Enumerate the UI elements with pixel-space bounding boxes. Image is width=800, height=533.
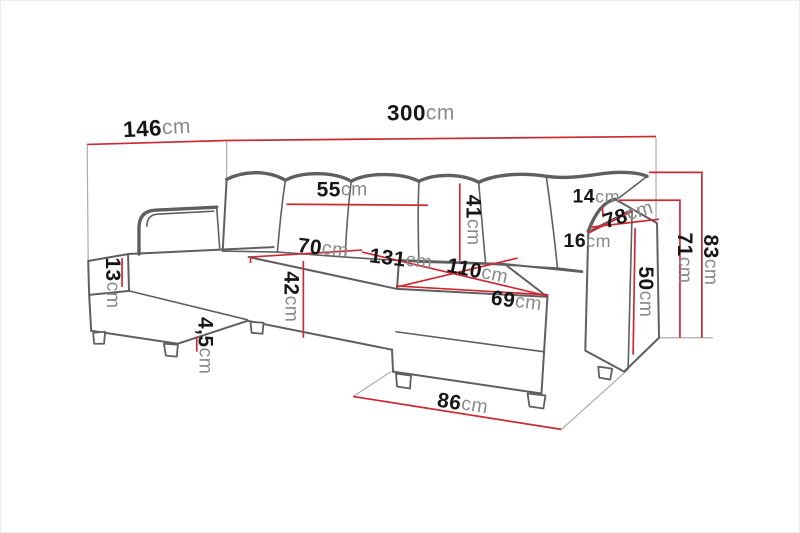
left-armrest-inner-line <box>147 211 214 226</box>
sofa-bottom-front-edge <box>91 321 392 350</box>
diagram-canvas: 146cm 300cm 55cm 41cm 14cm 78cm 16cm 71c… <box>1 1 799 532</box>
extension-line-left <box>87 144 88 260</box>
sofa-leg <box>93 332 105 344</box>
dim-label-42: 42cm <box>280 271 303 322</box>
dim-label-55: 55cm <box>317 178 368 201</box>
floor-projection-left <box>353 372 391 397</box>
dim-label-50: 50cm <box>635 266 658 317</box>
floor-projection-right <box>561 369 629 430</box>
dim-label-300: 300cm <box>387 100 455 125</box>
chaise-left-top-edge <box>128 247 273 254</box>
dim-label-70: 70cm <box>297 234 351 263</box>
chaise-left-cushion-seam <box>129 291 248 320</box>
sofa-leg <box>528 394 546 409</box>
chaise-left-base-edge <box>89 295 91 331</box>
dim-line-55 <box>286 204 427 205</box>
backrest-left-edge <box>223 179 227 251</box>
left-armrest-right-edge <box>217 207 220 248</box>
dim-label-69: 69cm <box>490 286 544 316</box>
dim-label-146: 146cm <box>122 113 191 142</box>
right-chaise-cushion-seam <box>396 332 543 352</box>
sofa-dimension-diagram: 146cm 300cm 55cm 41cm 14cm 78cm 16cm 71c… <box>0 0 800 533</box>
sofa-leg <box>251 322 264 334</box>
sofa-leg <box>396 374 411 389</box>
backrest-top-edge <box>227 172 647 182</box>
dim-label-16: 16cm <box>564 230 611 252</box>
dim-label-41: 41cm <box>462 195 485 246</box>
dim-line-146 <box>87 140 226 144</box>
dim-line-300 <box>227 136 656 140</box>
back-cushion-seam-5 <box>546 177 557 268</box>
left-armrest-outline <box>139 207 217 254</box>
dim-label-13: 13cm <box>102 257 125 308</box>
right-chaise-right-edge <box>541 297 547 394</box>
dim-label-83: 83cm <box>699 234 722 285</box>
dim-label-14: 14cm <box>573 185 620 207</box>
dim-label-4-5: 4,5cm <box>194 317 217 374</box>
sofa-drawing <box>88 172 659 408</box>
sofa-leg <box>598 367 612 380</box>
dim-label-86: 86cm <box>436 388 490 419</box>
back-cushion-seam-1 <box>277 180 285 251</box>
sofa-leg <box>164 344 178 357</box>
dim-label-131: 131cm <box>368 244 434 275</box>
dim-label-110: 110cm <box>445 253 511 288</box>
dim-label-71: 71cm <box>673 232 696 283</box>
back-cushion-corner-edge <box>617 176 647 199</box>
right-chaise-bottom-edge <box>393 372 541 394</box>
right-chaise-left-lower-edge <box>392 350 393 372</box>
